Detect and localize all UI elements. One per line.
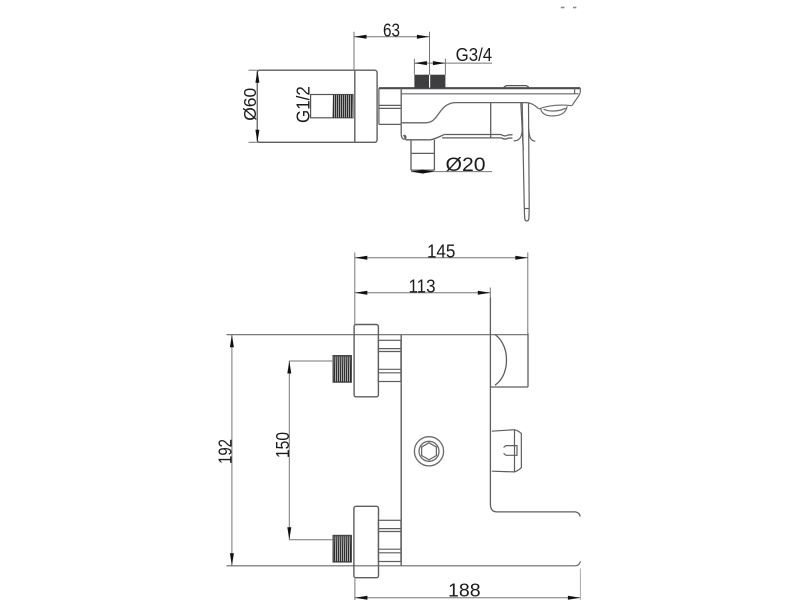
svg-text:Ø20: Ø20 bbox=[446, 155, 486, 176]
svg-text:150: 150 bbox=[272, 432, 293, 458]
svg-text:188: 188 bbox=[448, 580, 481, 600]
svg-text:G1/2: G1/2 bbox=[293, 86, 314, 123]
svg-text:113: 113 bbox=[409, 275, 436, 296]
svg-text:145: 145 bbox=[427, 241, 456, 262]
svg-text:G3/4: G3/4 bbox=[456, 44, 493, 65]
svg-text:Ø60: Ø60 bbox=[240, 88, 260, 121]
svg-text:192: 192 bbox=[214, 439, 235, 464]
svg-text:63: 63 bbox=[383, 20, 400, 41]
